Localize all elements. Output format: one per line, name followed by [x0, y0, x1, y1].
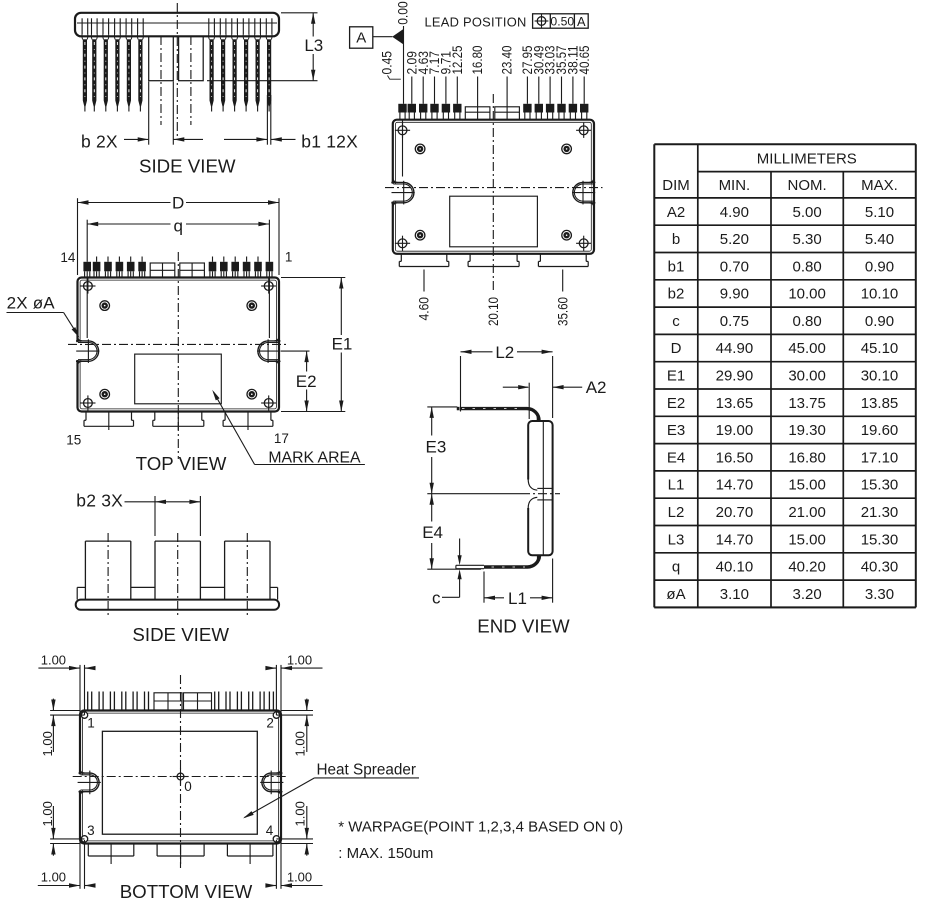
svg-text:L2: L2	[495, 343, 514, 362]
svg-text:L2: L2	[668, 504, 685, 521]
svg-text:A2: A2	[667, 204, 685, 221]
svg-text:E1: E1	[667, 368, 685, 385]
svg-text:4: 4	[266, 823, 274, 838]
svg-text:12.25: 12.25	[450, 46, 465, 75]
svg-text:45.10: 45.10	[861, 340, 899, 357]
svg-text:Heat Spreader: Heat Spreader	[317, 762, 417, 779]
svg-text:13.75: 13.75	[788, 395, 826, 412]
svg-text:L3: L3	[304, 36, 323, 55]
svg-text:14: 14	[60, 250, 76, 265]
svg-text:17: 17	[274, 431, 289, 446]
svg-text:15: 15	[66, 433, 81, 448]
svg-text:0.50: 0.50	[550, 14, 574, 28]
svg-text:NOM.: NOM.	[788, 177, 827, 194]
svg-text:15.30: 15.30	[861, 477, 899, 494]
svg-text:c: c	[432, 589, 441, 608]
svg-text:: MAX. 150um: : MAX. 150um	[338, 845, 433, 862]
svg-text:A: A	[356, 30, 366, 47]
svg-text:E2: E2	[667, 395, 685, 412]
svg-text:1.00: 1.00	[287, 652, 312, 667]
svg-text:b1: b1	[668, 258, 685, 275]
svg-text:b: b	[672, 231, 680, 248]
svg-text:1.00: 1.00	[287, 870, 312, 885]
svg-text:5.00: 5.00	[792, 204, 821, 221]
svg-text:1: 1	[285, 250, 293, 265]
svg-text:L1: L1	[668, 477, 685, 494]
svg-text:E3: E3	[667, 422, 685, 439]
svg-text:1.00: 1.00	[41, 652, 66, 667]
svg-text:40.65: 40.65	[577, 46, 592, 75]
svg-text:1.00: 1.00	[40, 731, 55, 756]
svg-text:16.50: 16.50	[716, 449, 754, 466]
svg-text:0.80: 0.80	[792, 313, 821, 330]
svg-text:E2: E2	[296, 372, 317, 391]
svg-text:14.70: 14.70	[716, 531, 754, 548]
svg-text:E4: E4	[422, 523, 443, 542]
svg-text:19.30: 19.30	[788, 422, 826, 439]
svg-text:29.90: 29.90	[716, 368, 754, 385]
svg-text:b2: b2	[668, 286, 685, 303]
svg-text:0.00: 0.00	[396, 1, 411, 25]
svg-text:5.40: 5.40	[865, 231, 894, 248]
svg-text:19.00: 19.00	[716, 422, 754, 439]
svg-text:3: 3	[87, 823, 95, 838]
svg-text:40.20: 40.20	[788, 559, 826, 576]
svg-text:DIM: DIM	[662, 177, 690, 194]
svg-text:0.90: 0.90	[865, 313, 894, 330]
svg-text:10.10: 10.10	[861, 286, 899, 303]
svg-text:15.30: 15.30	[861, 531, 899, 548]
svg-text:D: D	[172, 193, 184, 212]
svg-text:15.00: 15.00	[788, 531, 826, 548]
svg-text:SIDE VIEW: SIDE VIEW	[139, 156, 236, 177]
svg-text:c: c	[672, 313, 680, 330]
svg-text:23.40: 23.40	[500, 46, 515, 75]
svg-text:L1: L1	[508, 589, 527, 608]
svg-text:q: q	[672, 559, 680, 576]
svg-text:END VIEW: END VIEW	[477, 616, 570, 637]
svg-text:q: q	[173, 216, 182, 235]
svg-text:0.75: 0.75	[720, 313, 749, 330]
svg-text:45.00: 45.00	[788, 340, 826, 357]
svg-text:17.10: 17.10	[861, 449, 899, 466]
svg-text:3.10: 3.10	[720, 586, 749, 603]
svg-text:0.80: 0.80	[792, 258, 821, 275]
svg-text:1.00: 1.00	[292, 731, 307, 756]
svg-text:b1 12X: b1 12X	[301, 131, 358, 151]
svg-text:MAX.: MAX.	[861, 177, 898, 194]
svg-text:MILLIMETERS: MILLIMETERS	[757, 150, 857, 167]
svg-text:A2: A2	[586, 378, 607, 397]
svg-text:3.20: 3.20	[792, 586, 821, 603]
svg-text:D: D	[671, 340, 682, 357]
svg-text:30.10: 30.10	[861, 368, 899, 385]
svg-text:0: 0	[184, 779, 192, 794]
svg-text:16.80: 16.80	[788, 449, 826, 466]
svg-text:13.65: 13.65	[716, 395, 754, 412]
svg-text:20.10: 20.10	[486, 297, 501, 326]
svg-text:13.85: 13.85	[861, 395, 899, 412]
svg-text:5.10: 5.10	[865, 204, 894, 221]
svg-text:1.00: 1.00	[40, 801, 55, 826]
svg-text:øA: øA	[666, 586, 685, 603]
svg-text:2X øA: 2X øA	[7, 294, 56, 313]
svg-text:E3: E3	[426, 437, 447, 456]
svg-text:0.45: 0.45	[379, 51, 394, 75]
svg-text:14.70: 14.70	[716, 477, 754, 494]
svg-text:44.90: 44.90	[716, 340, 754, 357]
svg-text:L3: L3	[668, 531, 685, 548]
svg-text:E4: E4	[667, 449, 685, 466]
svg-text:5.20: 5.20	[720, 231, 749, 248]
svg-text:MARK AREA: MARK AREA	[268, 449, 361, 466]
svg-text:SIDE VIEW: SIDE VIEW	[132, 624, 229, 645]
svg-text:21.30: 21.30	[861, 504, 899, 521]
svg-text:30.00: 30.00	[788, 368, 826, 385]
svg-text:15.00: 15.00	[788, 477, 826, 494]
svg-text:0.90: 0.90	[865, 258, 894, 275]
svg-text:9.90: 9.90	[720, 286, 749, 303]
svg-text:1.00: 1.00	[41, 870, 66, 885]
svg-text:E1: E1	[332, 335, 353, 354]
svg-text:b 2X: b 2X	[81, 131, 118, 151]
svg-text:3.30: 3.30	[865, 586, 894, 603]
svg-text:20.70: 20.70	[716, 504, 754, 521]
svg-text:TOP VIEW: TOP VIEW	[136, 453, 227, 474]
svg-text:BOTTOM VIEW: BOTTOM VIEW	[120, 881, 253, 902]
svg-text:35.60: 35.60	[555, 297, 570, 326]
svg-text:LEAD POSITION: LEAD POSITION	[425, 15, 527, 30]
svg-text:2: 2	[266, 716, 274, 731]
svg-text:MIN.: MIN.	[719, 177, 751, 194]
svg-text:4.60: 4.60	[417, 297, 432, 321]
svg-text:A: A	[577, 14, 586, 29]
svg-text:0.70: 0.70	[720, 258, 749, 275]
svg-text:b2 3X: b2 3X	[76, 491, 123, 511]
svg-text:1.00: 1.00	[292, 801, 307, 826]
svg-text:21.00: 21.00	[788, 504, 826, 521]
svg-text:1: 1	[87, 716, 95, 731]
svg-text:* WARPAGE(POINT 1,2,3,4 BASED: * WARPAGE(POINT 1,2,3,4 BASED ON 0)	[338, 819, 623, 836]
svg-text:40.10: 40.10	[716, 559, 754, 576]
svg-text:10.00: 10.00	[788, 286, 826, 303]
svg-text:40.30: 40.30	[861, 559, 899, 576]
svg-text:4.90: 4.90	[720, 204, 749, 221]
svg-text:19.60: 19.60	[861, 422, 899, 439]
svg-text:16.80: 16.80	[470, 46, 485, 75]
svg-text:5.30: 5.30	[792, 231, 821, 248]
